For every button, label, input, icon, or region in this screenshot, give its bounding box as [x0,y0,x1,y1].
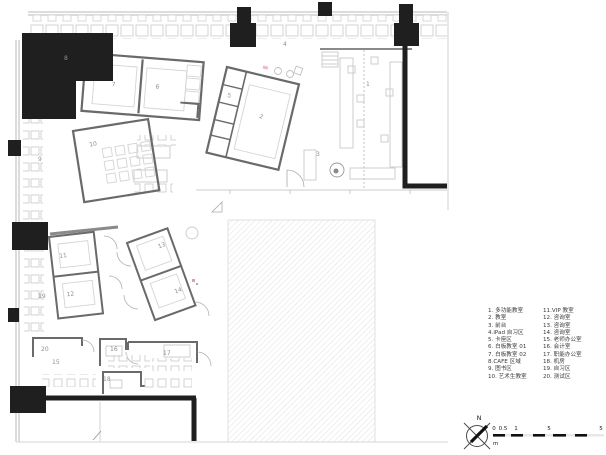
classroom-block: 5 2 [206,67,298,170]
room-label-17: 17 [163,350,171,357]
legend-item: 16. 会计室 [543,344,605,351]
room-label-6: 6 [155,84,160,91]
legend-item: 7. 白板教室 02 [488,352,540,359]
door-arc [82,340,94,352]
room-label-12: 12 [66,291,75,299]
legend-item: 3. 前台 [488,323,540,330]
marker-dot [263,66,269,70]
round-table [186,227,198,239]
chair [287,71,294,78]
room-label-10: 10 [89,140,98,148]
legend-item: 2. 教室 [488,315,540,322]
room-label-2: 2 [259,113,265,121]
legend: 1. 多功能教室 2. 教室 3. 前台 4.iPad 自习区 5. 卡座区 6… [488,308,605,381]
scale-tick-05: 0.5 [499,426,508,432]
room-label-4: 4 [283,41,287,48]
level-triangle-symbol [212,202,222,212]
scale-unit: m [493,441,498,447]
room-label-16: 16 [110,346,118,353]
door-arc [195,302,209,316]
door-arc [197,352,211,366]
scale-tick-1: 1 [514,426,518,432]
scale-tick-5b: 5 [599,426,603,432]
room-label-9: 9 [38,156,42,163]
stool [294,66,303,75]
door-arc [109,276,122,289]
scale-tick-5: 5 [547,426,551,432]
hatched-void-area [228,220,375,442]
legend-column-2: 11.VIP 教室 12. 咨询室 13. 咨询室 14. 咨询室 15. 老师… [543,308,605,381]
legend-item: 6. 白板教室 01 [488,344,540,351]
floor-plan-page: 7 6 5 2 10 11 12 [0,0,606,455]
legend-item: 12. 咨询室 [543,315,605,322]
plant-pink [192,279,195,282]
legend-column-1: 1. 多功能教室 2. 教室 3. 前台 4.iPad 自习区 5. 卡座区 6… [488,308,540,381]
floor-plan-drawing: 7 6 5 2 10 11 12 [0,0,606,455]
scale-bar: 0 0.5 1 5 5 m [492,426,604,447]
north-arrow: N [464,414,490,449]
room-1-multifunction [196,49,447,194]
room-label-1: 1 [366,81,370,88]
room-label-19: 19 [38,293,46,300]
room-label-18: 18 [103,376,111,383]
front-desk [304,150,316,180]
room-label-20: 20 [41,346,49,353]
plant-green [196,283,198,285]
door-arc [117,252,131,266]
room-label-8: 8 [64,55,68,62]
vip-consult-block-a: 11 12 [49,232,103,319]
legend-item: 10. 艺术生教室 [488,374,540,381]
door-arc [124,295,138,309]
center-seats-1 [137,135,176,146]
study-area-booths [24,240,44,336]
north-label: N [477,414,482,422]
legend-item: 17. 职能办公室 [543,352,605,359]
shelf [322,52,338,67]
entrance-door-arc [287,170,304,187]
vip-consult-block-b: 13 14 [127,228,195,320]
room-label-11: 11 [59,252,68,260]
room-label-5: 5 [227,92,233,100]
legend-item: 13. 咨询室 [543,323,605,330]
room-label-3: 3 [316,151,320,158]
legend-item: 20. 测试区 [543,374,605,381]
room-label-7: 7 [111,81,116,88]
legend-item: 19. 自习区 [543,366,605,373]
door-arc [104,236,117,249]
room-label-15: 15 [52,359,60,366]
legend-item: 9. 图书区 [488,366,540,373]
scale-tick-0: 0 [492,426,496,432]
chair [275,68,282,75]
